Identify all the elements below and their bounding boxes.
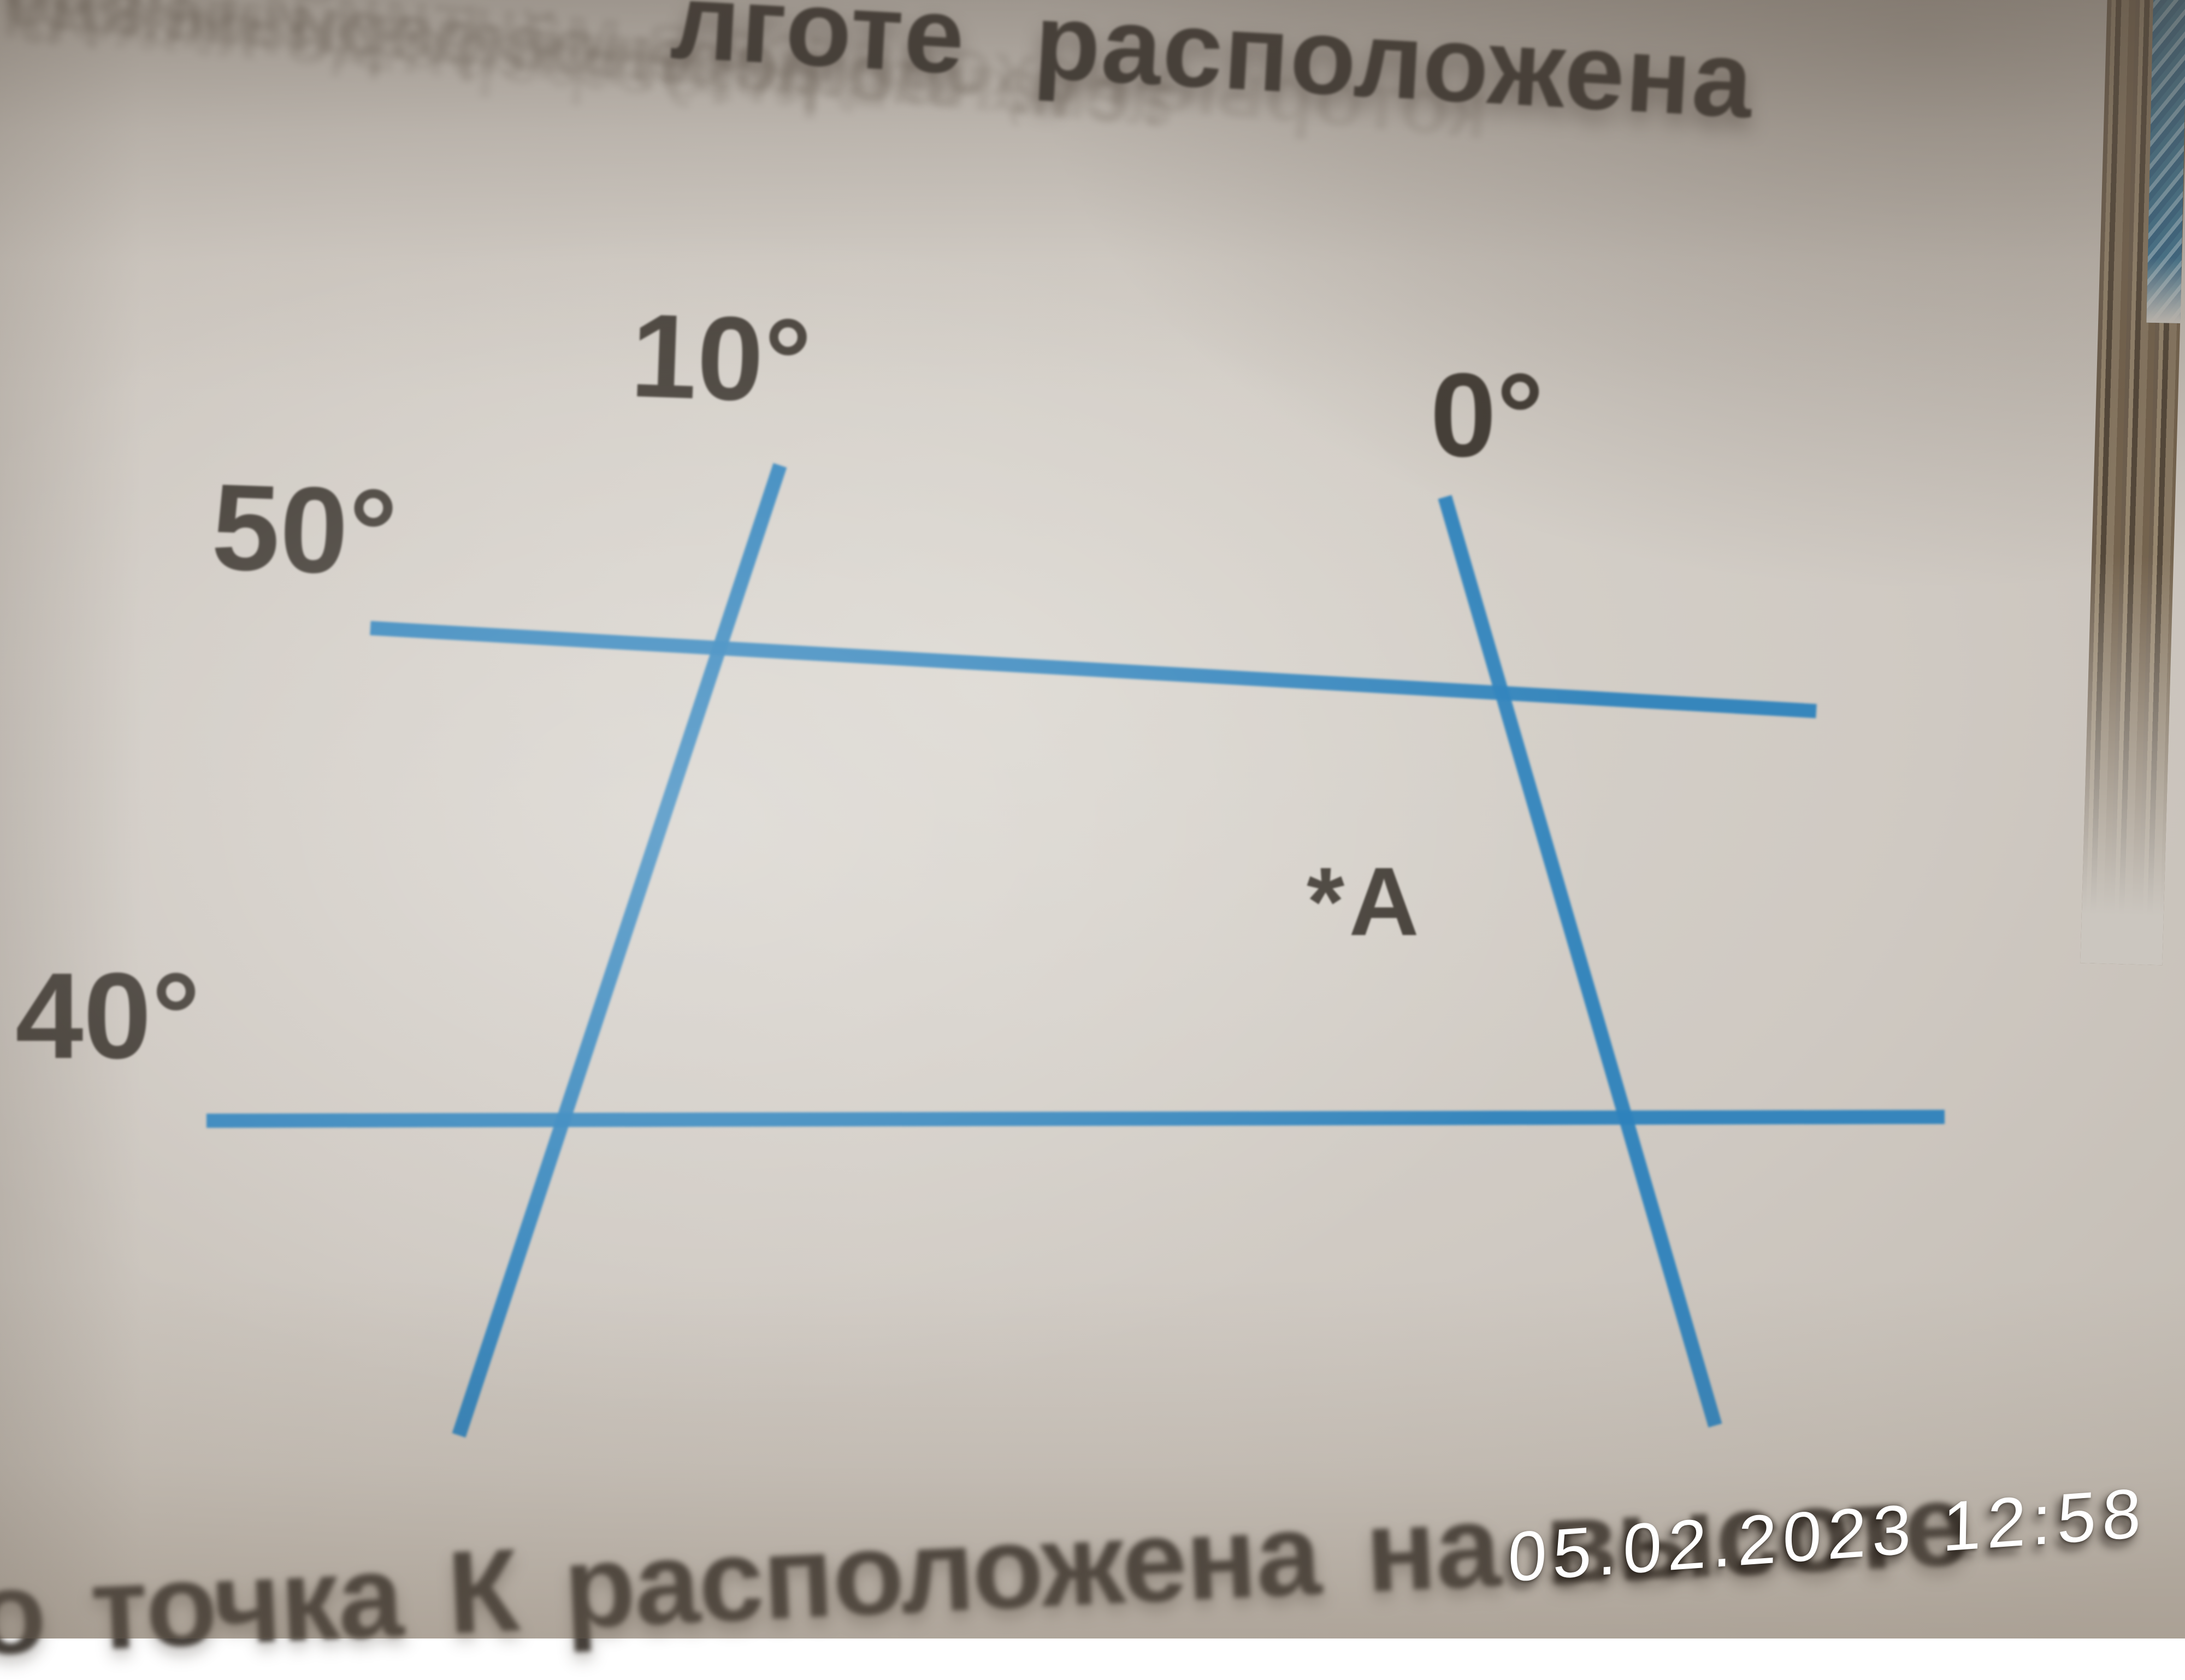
book-cover-edge — [2146, 0, 2185, 323]
point-A-marker: *A — [1307, 845, 1424, 957]
parallel-40-line — [206, 1117, 1945, 1121]
meridian-10-line — [459, 465, 780, 1435]
meridian-0-line — [1445, 497, 1715, 1425]
parallel-40-label: 40° — [15, 955, 200, 1077]
coordinate-grid-diagram — [0, 0, 2185, 1638]
meridian-0-label: 0° — [1430, 356, 1544, 475]
parallel-50-label: 50° — [210, 465, 399, 594]
parallel-50-line — [370, 628, 1816, 711]
book-page-photo: Литосферные плиты астеносферный слой меж… — [0, 0, 2185, 1638]
meridian-10-label: 10° — [629, 296, 813, 421]
